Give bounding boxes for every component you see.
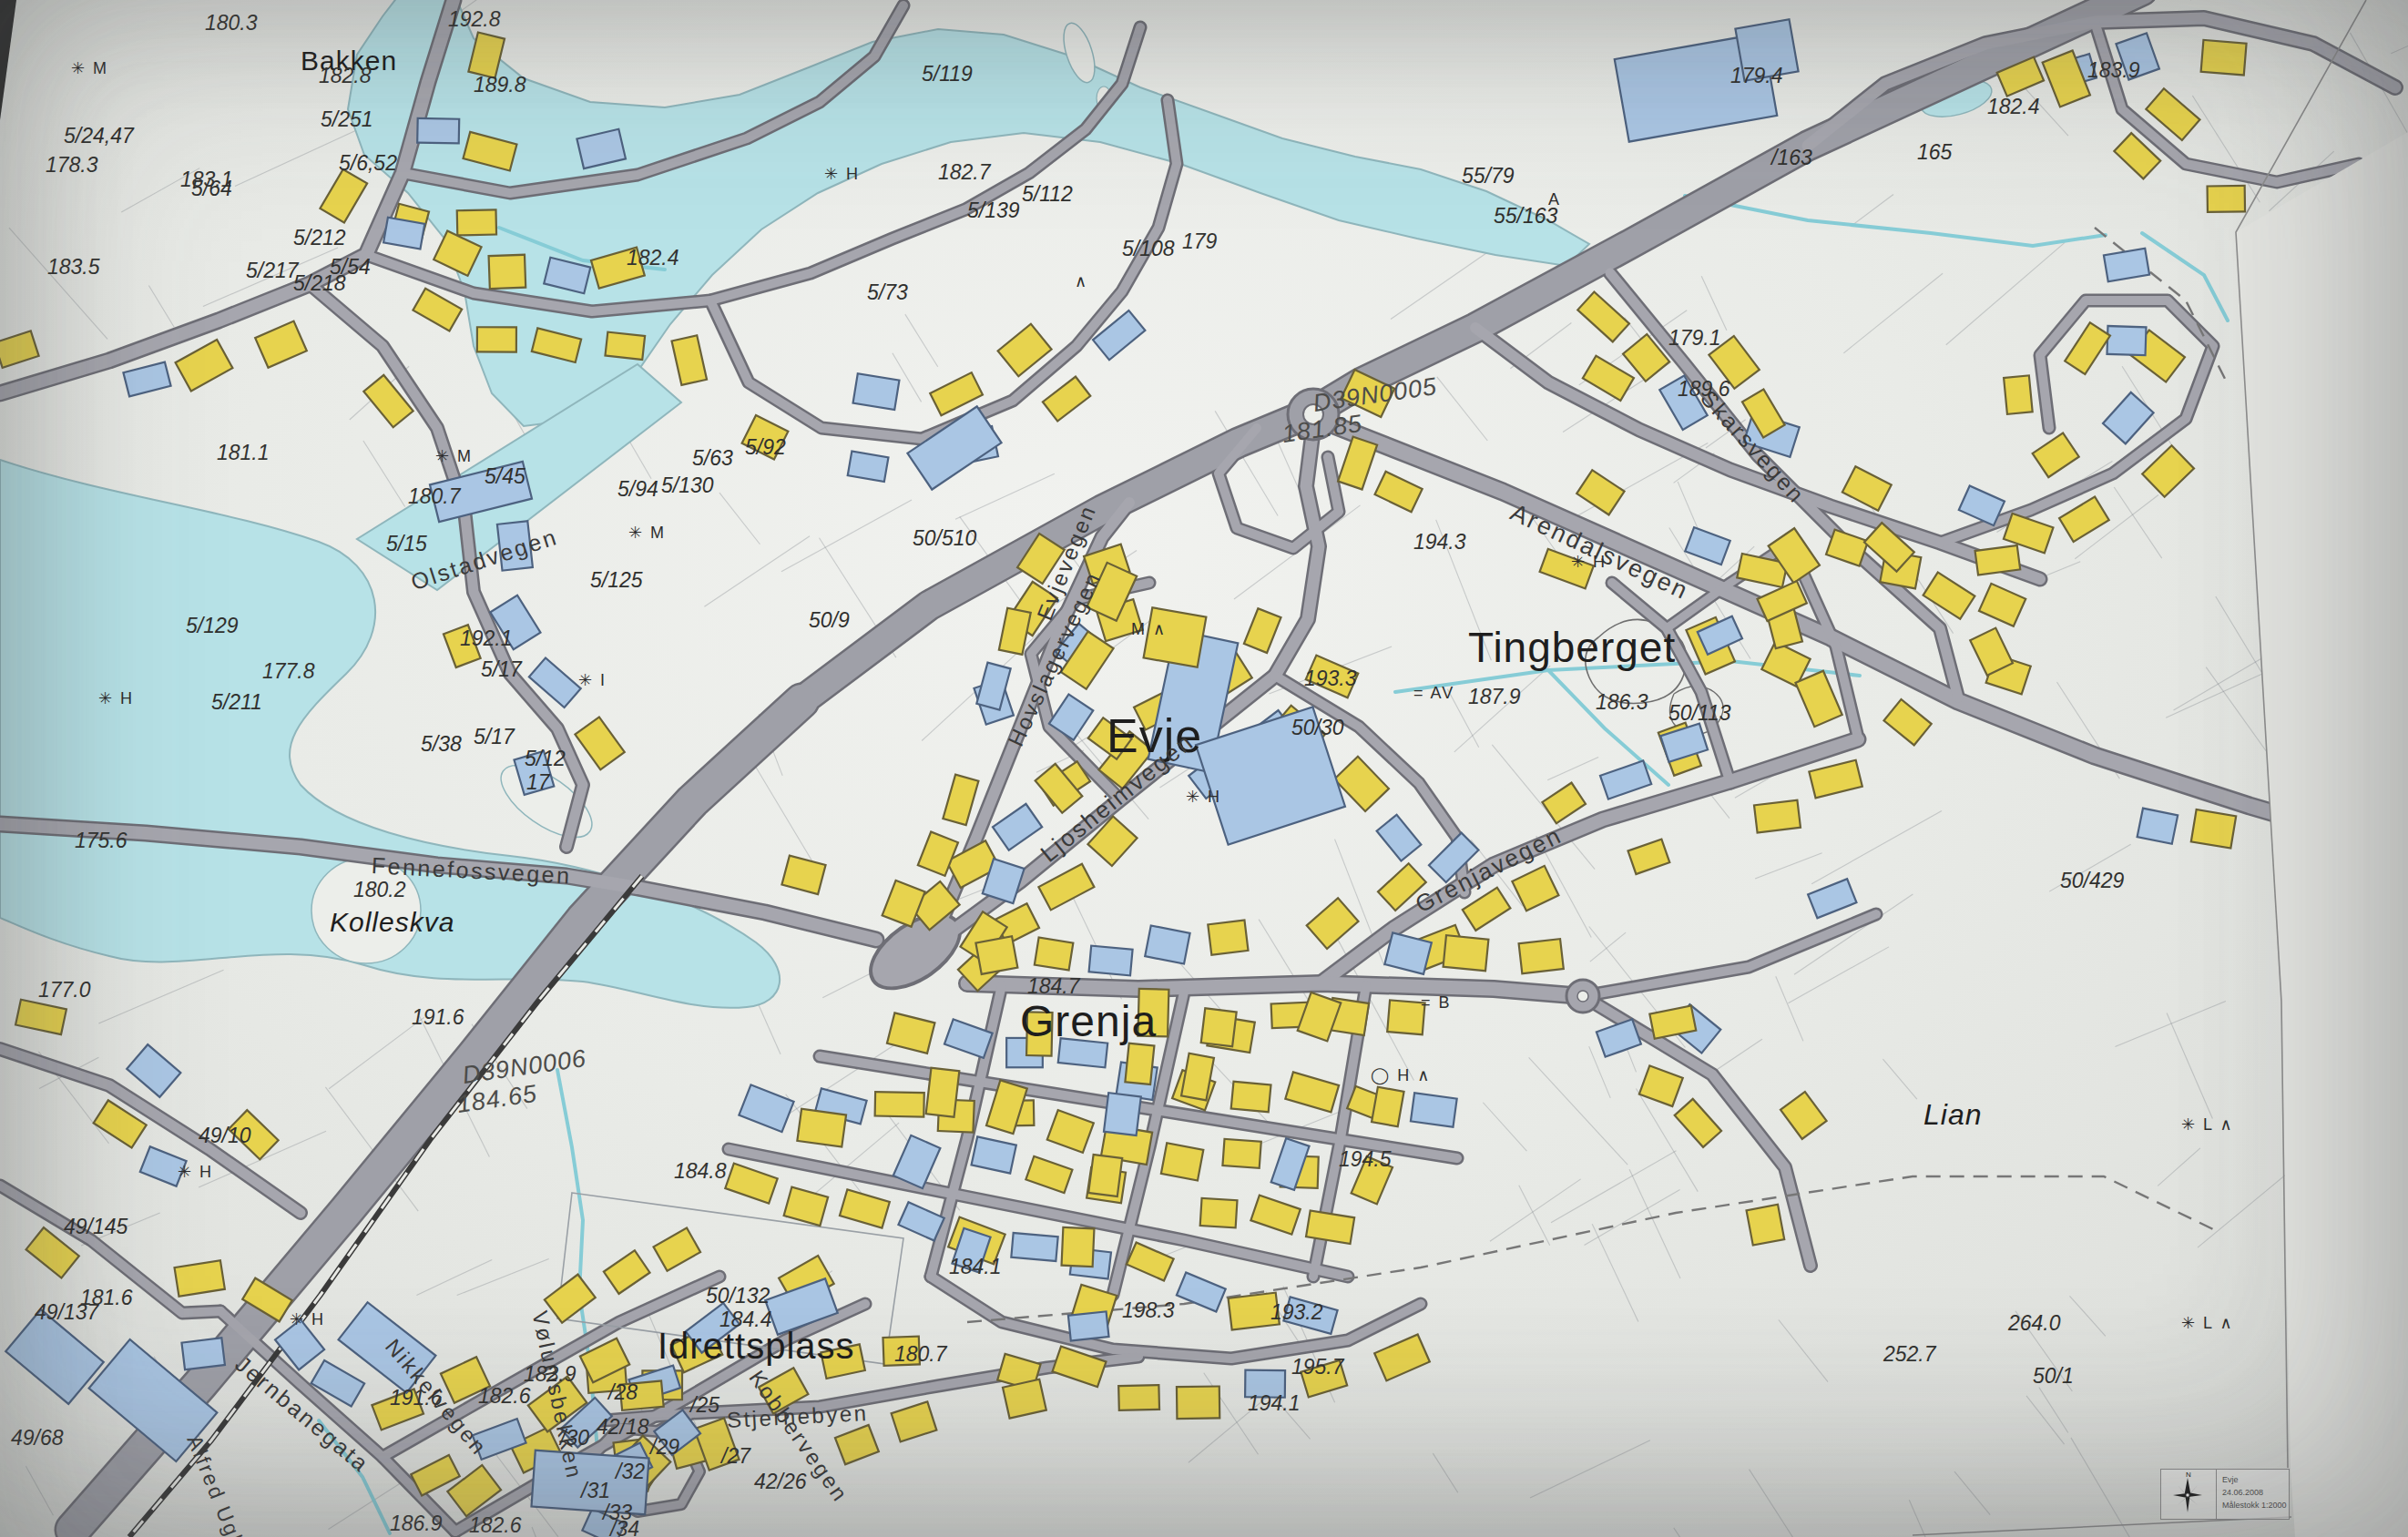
map-place-label: Kolleskva	[330, 909, 454, 936]
map-elev-label: 175.6	[75, 830, 128, 851]
map-parcel-label: 50/9	[809, 610, 850, 631]
map-elev-label: 194.1	[1248, 1393, 1301, 1414]
legend-title: Evje	[2222, 1474, 2289, 1487]
map-elev-label: 184.7	[1027, 976, 1080, 997]
map-elev-label: 192.8	[448, 9, 501, 30]
map-road-label: Alfred Uglands veg	[183, 1432, 284, 1537]
map-sym-label: ✳ H	[290, 1311, 325, 1328]
map-sym-label: ✳ M	[628, 524, 666, 541]
map-parcel-label: 5/24,47	[64, 126, 134, 147]
map-elev-label: 189.6	[1678, 379, 1730, 400]
map-road-label: Skarsvegen	[1697, 386, 1810, 507]
map-elev-label: 192.1	[460, 628, 513, 649]
map-sym-label: ◯ H ∧	[1371, 1067, 1431, 1084]
map-parcel-label: 50/113	[1668, 703, 1731, 724]
map-elev-label: 193.3	[1304, 668, 1357, 689]
map-sym-label: ✳ H	[1571, 554, 1607, 570]
map-sym-label: ✳ H	[1186, 789, 1221, 805]
map-parcel-label: /34	[610, 1519, 639, 1537]
map-place-label: Lian	[1923, 1100, 1983, 1129]
map-parcel-label: /27	[721, 1446, 750, 1467]
map-elev-label: 177.8	[262, 661, 315, 682]
map-parcel-label: 49/68	[11, 1428, 64, 1449]
map-sym-label: = AV	[1413, 685, 1454, 701]
map-place-label: Tingberget	[1468, 626, 1676, 668]
map-elev-label: 180.3	[205, 13, 258, 34]
map-elev-label: 189.8	[474, 75, 526, 96]
map-parcel-label: 50/30	[1291, 718, 1344, 738]
map-parcel-label: 5/45	[485, 466, 525, 487]
map-sym-label: ∧	[1075, 273, 1088, 290]
map-parcel-label: 5/38	[421, 734, 462, 755]
map-elev-label: 180.2	[353, 880, 406, 901]
map-parcel-label: 5/15	[386, 534, 427, 555]
map-elev-label: 194.3	[1413, 532, 1466, 553]
map-sym-label: A	[1548, 191, 1561, 208]
map-parcel-label: 5/108	[1122, 239, 1175, 260]
map-elev-label: 177.0	[38, 980, 91, 1001]
map-sym-label: ✳ H	[178, 1164, 213, 1180]
map-parcel-label: 55/79	[1462, 166, 1515, 187]
map-place-label: Idrettsplass	[658, 1328, 855, 1364]
map-elev-label: 183.9	[2087, 60, 2140, 81]
map-parcel-label: 5/211	[211, 692, 262, 713]
map-elev-label: 182.6	[469, 1515, 522, 1536]
legend-text: Evje 24.06.2008 Målestokk 1:2000	[2217, 1470, 2289, 1519]
map-parcel-label: 50/132	[706, 1286, 770, 1307]
map-parcel-label: 5/112	[1022, 184, 1073, 205]
map-elev-label: 184.4	[719, 1309, 772, 1330]
map-sym-label: M ∧	[1131, 621, 1167, 637]
map-parcel-label: 5/119	[922, 64, 973, 85]
compass-rose: N	[2161, 1470, 2217, 1519]
map-parcel-label: 49/145	[64, 1216, 128, 1237]
map-parcel-label: 5/63	[692, 448, 733, 469]
legend-date: 24.06.2008	[2222, 1487, 2289, 1500]
map-elev-label: 183.5	[47, 257, 100, 278]
map-elev-label: 179.1	[1668, 328, 1721, 349]
map-parcel-label: 42/18	[597, 1417, 649, 1438]
map-parcel-label: 17	[526, 772, 550, 793]
map-parcel-label: 5/139	[967, 200, 1020, 221]
map-parcel-label: 49/10	[199, 1125, 251, 1146]
map-elev-label: 195.7	[1291, 1357, 1344, 1378]
map-parcel-label: 5/12	[525, 748, 566, 769]
map-road-label: Jernbanegata	[231, 1352, 373, 1477]
map-parcel-label: 5/129	[186, 616, 239, 636]
map-parcel-label: 50/510	[913, 528, 976, 549]
legend-box: N Evje 24.06.2008 Målestokk 1:2000	[2160, 1469, 2290, 1520]
map-parcel-label: 5/92	[745, 437, 786, 458]
map-elev-label: 193.2	[1270, 1302, 1323, 1323]
map-parcel-label: 5/73	[867, 282, 908, 303]
map-elev-label: 180.7	[894, 1344, 947, 1365]
map-parcel-label: 50/429	[2060, 870, 2124, 891]
map-sym-label: ✳ H	[824, 166, 860, 182]
map-elev-label: 184.1	[949, 1257, 1002, 1277]
map-road-label: Olstadvegen	[408, 525, 560, 595]
map-parcel-label: /28	[608, 1382, 638, 1403]
map-sym-label: ✳ H	[98, 690, 134, 707]
map-parcel-label: 5/130	[661, 475, 714, 496]
map-sym-label: ✳ M	[435, 448, 473, 464]
map-elev-label: 183.1	[180, 169, 233, 190]
map-elev-label: 182.9	[524, 1364, 576, 1385]
map-parcel-label: 50/1	[2033, 1366, 2074, 1387]
map-elev-label: 187.9	[1468, 687, 1521, 707]
map-place-label: Grenja	[1020, 1000, 1157, 1043]
map-sym-label: ✳ I	[578, 672, 607, 688]
map-labels: BakkenEvjeTingbergetGrenjaKolleskvaLianI…	[0, 0, 2408, 1537]
map-elev-label: 181.6	[80, 1288, 133, 1308]
map-elev-label: 186.3	[1596, 692, 1648, 713]
map-parcel-label: 5/125	[590, 570, 643, 591]
map-elev-label: 191.6	[412, 1007, 464, 1028]
map-road-label: Grenjavegen	[1412, 822, 1566, 916]
map-sym-label: ✳ L ∧	[2181, 1315, 2234, 1331]
map-elev-label: 179	[1182, 231, 1217, 252]
map-parcel-label: 165	[1917, 142, 1952, 163]
map-parcel-label: 5/218	[293, 273, 346, 294]
map-ref-label: D39N0005	[1311, 374, 1439, 416]
map-elev-label: 179.4	[1730, 66, 1783, 87]
map-elev-label: 178.3	[46, 155, 98, 176]
map-elev-label: 182.4	[627, 248, 679, 269]
map-elev-label: 182.4	[1987, 97, 2040, 117]
map-parcel-label: /29	[650, 1437, 679, 1458]
compass-star-icon	[2161, 1470, 2214, 1517]
map-elev-label: 182.6	[478, 1386, 531, 1407]
map-elev-label: 184.8	[674, 1161, 727, 1182]
map-photo: BakkenEvjeTingbergetGrenjaKolleskvaLianI…	[0, 0, 2408, 1537]
map-elev-label: 182.8	[319, 66, 372, 87]
map-parcel-label: /32	[616, 1461, 645, 1482]
map-elev-label: 194.5	[1339, 1149, 1392, 1170]
map-elev-label: 252.7	[1883, 1344, 1936, 1365]
map-elev-label: 186.9	[390, 1513, 443, 1534]
map-parcel-label: /163	[1771, 148, 1812, 168]
map-parcel-label: /30	[560, 1428, 589, 1449]
map-parcel-label: 5/17	[474, 727, 515, 748]
map-parcel-label: 42/26	[754, 1471, 807, 1492]
map-road-label: Stjernebyen	[726, 1402, 869, 1431]
map-sym-label: = B	[1421, 994, 1452, 1011]
map-parcel-label: 5/217	[246, 260, 299, 281]
map-parcel-label: 5/17	[481, 659, 522, 680]
map-parcel-label: /31	[581, 1481, 610, 1501]
map-elev-label: 264.0	[2008, 1313, 2061, 1334]
map-parcel-label: 5/6,52	[339, 153, 397, 174]
map-parcel-label: 5/212	[293, 228, 346, 249]
map-ref-label: 181.85	[1281, 412, 1363, 447]
legend-scale: Målestokk 1:2000	[2222, 1500, 2289, 1512]
map-sym-label: ✳ M	[71, 60, 108, 76]
map-parcel-label: 5/94	[617, 479, 658, 500]
map-parcel-label: 5/251	[321, 109, 373, 130]
map-parcel-label: 55/163	[1494, 206, 1557, 227]
map-elev-label: 198.3	[1122, 1300, 1175, 1321]
map-elev-label: 181.1	[217, 443, 270, 463]
map-road-label: Vølumsbekken	[528, 1309, 586, 1482]
map-parcel-label: /25	[690, 1395, 719, 1416]
map-sym-label: ✳ L ∧	[2181, 1116, 2234, 1133]
map-elev-label: 180.7	[408, 486, 461, 507]
map-elev-label: 191.6	[390, 1388, 443, 1409]
map-elev-label: 182.7	[938, 162, 991, 183]
